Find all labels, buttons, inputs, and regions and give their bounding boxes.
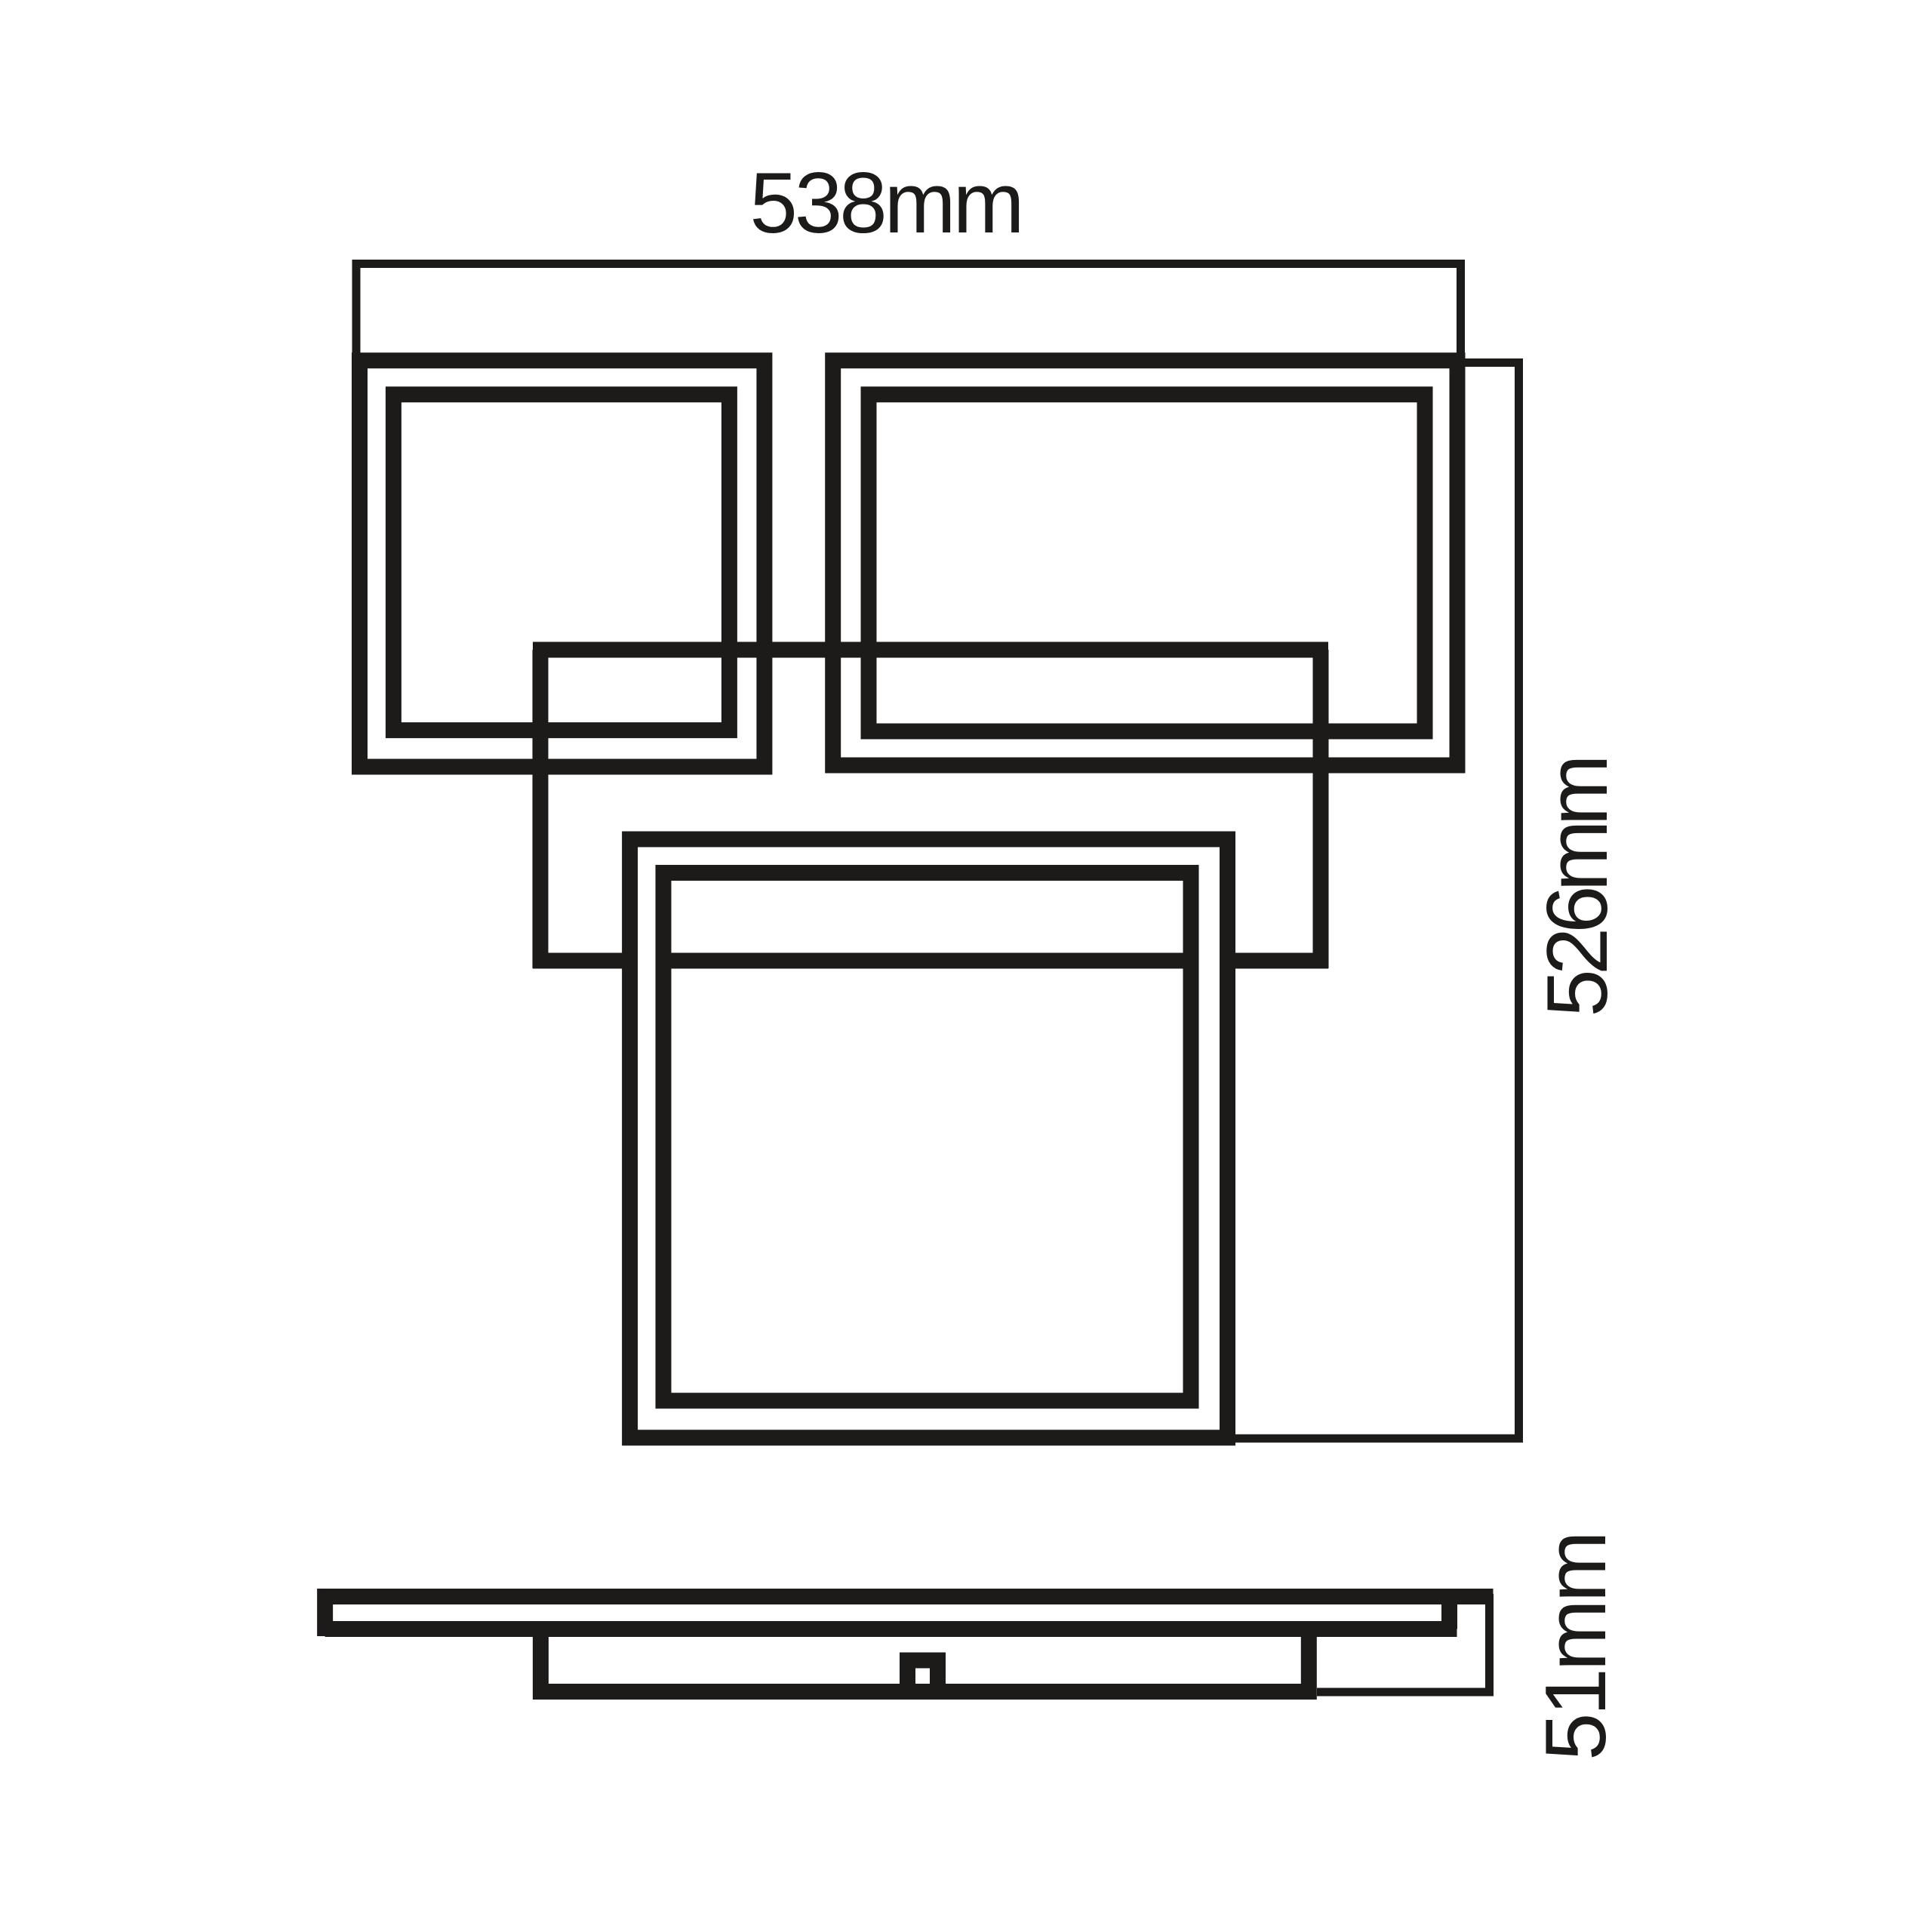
svg-text:538mm: 538mm — [749, 155, 1021, 251]
svg-text:526mm: 526mm — [1530, 759, 1626, 1017]
svg-text:51mm: 51mm — [1528, 1534, 1624, 1761]
